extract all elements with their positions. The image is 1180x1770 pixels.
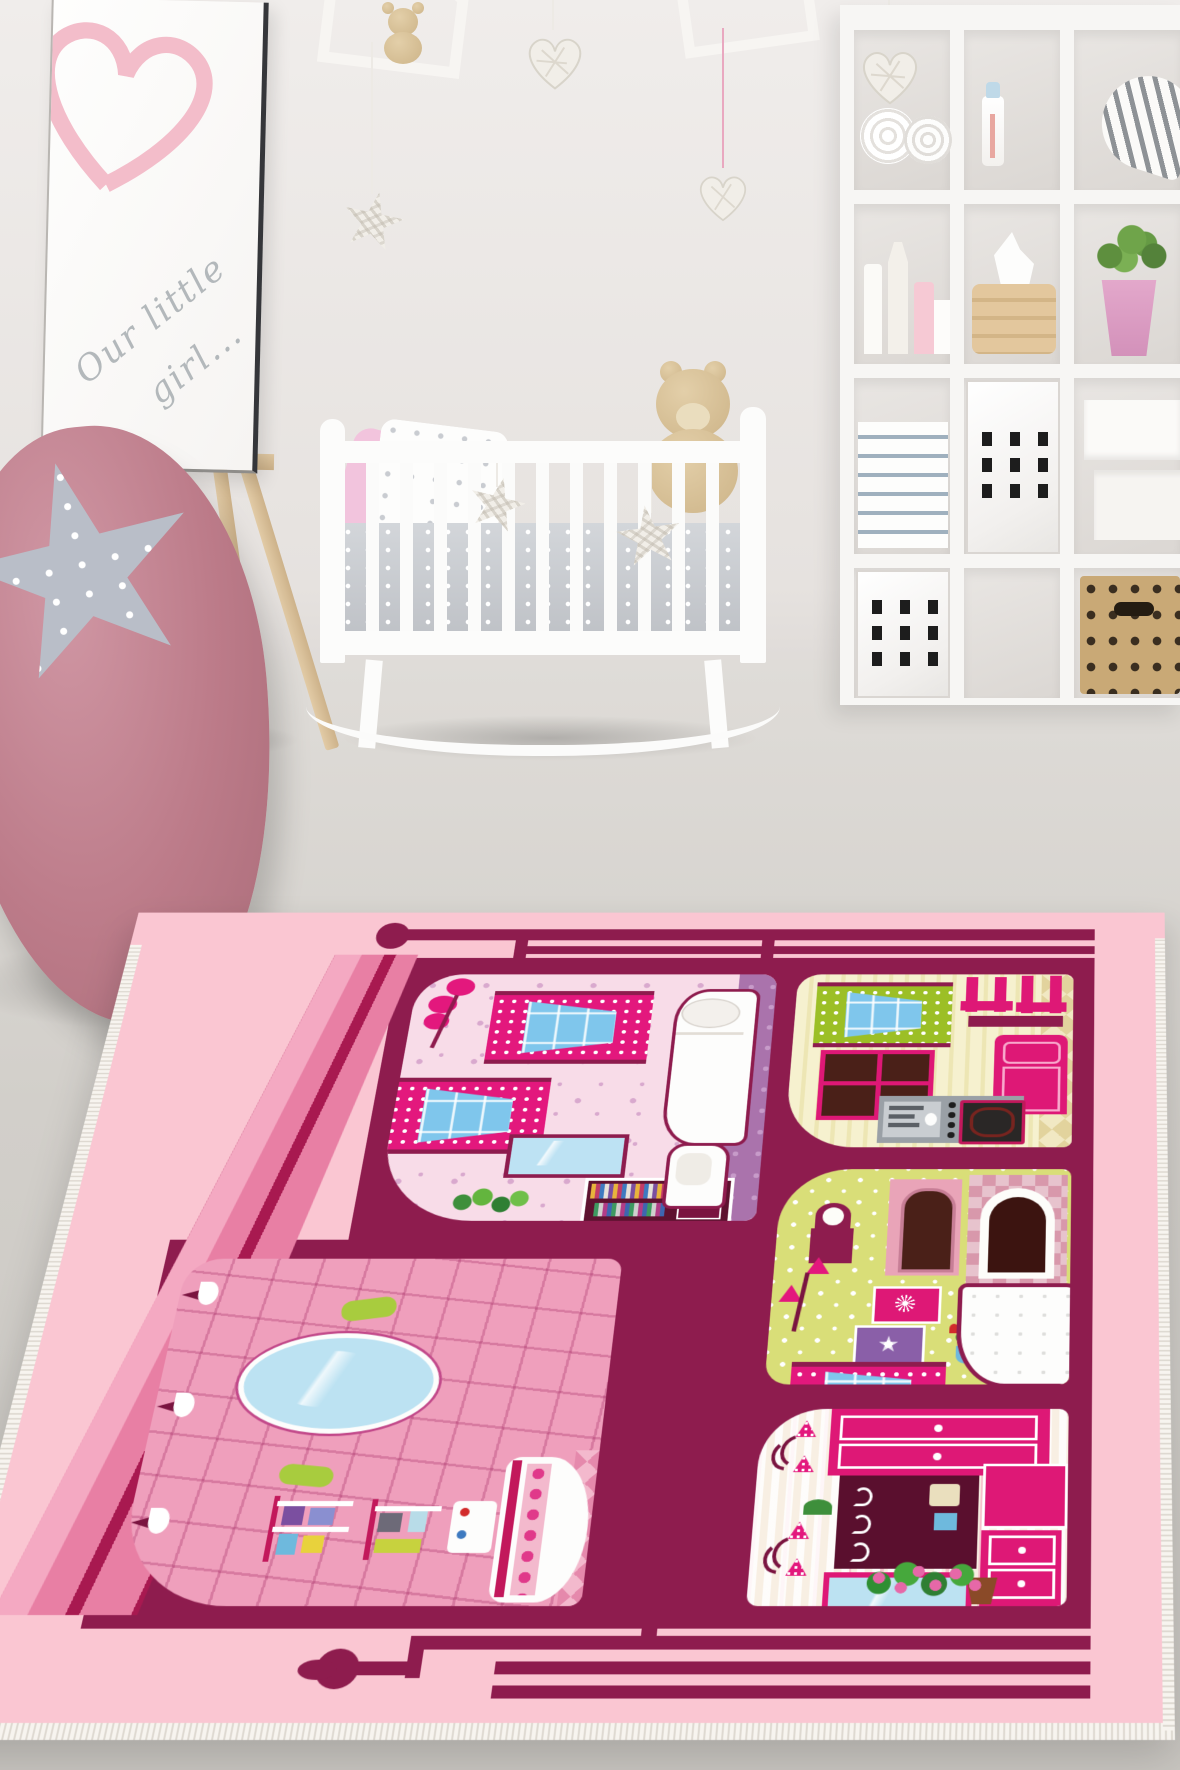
mini-teddy: [380, 8, 426, 64]
baby-bottle: [982, 96, 1004, 166]
rocking-crib: [320, 405, 765, 750]
living-fireplace: [965, 1175, 1067, 1289]
hanging-cord-pink: [722, 28, 724, 168]
bedroom-plant: [442, 1184, 536, 1221]
rug-banister: [372, 918, 1095, 958]
kitchen-window: [813, 982, 953, 1047]
perforated-door: [966, 380, 1060, 554]
wicker-basket: [1080, 576, 1180, 694]
nursery-room-photo: { "scene": { "description": "Nursery roo…: [0, 0, 1180, 1770]
shelf-cell: [964, 204, 1060, 364]
wicker-heart-right: [856, 30, 924, 122]
rug-room-dressing: [746, 1409, 1069, 1606]
bathroom-pedestal-sink: [461, 1357, 553, 1454]
bathroom-pedestal-sink: [375, 1357, 465, 1452]
shelf-cell: [1074, 378, 1180, 554]
dressing-sconce: [764, 1420, 821, 1482]
shelf-cell: [964, 30, 1060, 190]
dressing-rose-bush: [855, 1555, 1012, 1606]
bedroom-armchair: [661, 1143, 731, 1209]
bedroom-bed: [660, 989, 762, 1146]
shelf-cell: [1074, 204, 1180, 364]
bathroom-pedestal-sink: [482, 1266, 565, 1339]
bathroom-sconce: [153, 1391, 197, 1424]
bathroom-slippers: [276, 1463, 336, 1488]
shelf-cell: [1074, 30, 1180, 190]
rug-room-living: [764, 1169, 1071, 1384]
living-flower-mat: [871, 1286, 942, 1323]
striped-heart-cushion: [1090, 64, 1180, 182]
living-flower-mat: [852, 1325, 925, 1365]
rug-room-bathroom: [110, 1259, 622, 1606]
shelf-cell: [854, 378, 950, 554]
book-stack: [858, 422, 948, 548]
shelf-cell: [964, 568, 1060, 698]
bedroom-lamp: [411, 978, 483, 1052]
living-window: [787, 1362, 946, 1385]
rug-room-kitchen: [784, 974, 1074, 1147]
dressing-green-hat: [803, 1499, 833, 1514]
candle: [914, 282, 934, 354]
living-clock: [809, 1203, 856, 1263]
canvas-art: Our little girl...: [40, 0, 268, 474]
bathroom-stand: [446, 1501, 497, 1553]
bedroom-window: [484, 991, 655, 1064]
pink-plant-pot: [1098, 280, 1160, 356]
wicker-heart-left: [522, 22, 588, 102]
kitchen-table-chairs: [959, 974, 1072, 1036]
crib-post-right: [740, 407, 766, 663]
dressing-sconce: [755, 1522, 814, 1587]
shelf-cell: [854, 568, 950, 698]
bathroom-slippers: [341, 1296, 396, 1323]
hanging-cord: [371, 42, 373, 194]
bathroom-pedestal-sink: [404, 1268, 475, 1340]
wooden-tissue-box: [972, 284, 1056, 354]
bathroom-sconce: [178, 1280, 221, 1311]
shelf-cell: [854, 204, 950, 364]
white-box: [1084, 400, 1180, 460]
living-sofa: [954, 1283, 1071, 1384]
rug-room-bedroom: [374, 974, 777, 1220]
living-door: [885, 1179, 962, 1275]
bathroom-sconce: [127, 1506, 173, 1541]
wicker-heart-center: [694, 162, 752, 232]
crib-post-left: [320, 419, 345, 663]
candle: [934, 300, 950, 354]
heart-outline-icon: [40, 0, 244, 220]
shelf-cell: [1074, 568, 1180, 698]
rug-surface: [0, 913, 1175, 1740]
rug-fringe-bottom: [0, 1723, 1175, 1740]
dollhouse-play-rug: [0, 913, 1175, 1740]
shelf-cell: [964, 378, 1060, 554]
rolled-towel: [904, 116, 952, 164]
white-box: [1094, 470, 1180, 540]
candle: [888, 242, 908, 354]
tissue-puff: [994, 232, 1034, 290]
bathroom-toiletry-shelf: [262, 1496, 358, 1562]
rug-staircase: [288, 1629, 1090, 1721]
crib-slats: [332, 463, 754, 637]
kitchen-stove: [877, 1096, 1024, 1143]
crib-bottom-rail: [326, 631, 760, 655]
plant-foliage: [1084, 210, 1176, 284]
perforated-door: [856, 570, 950, 698]
crib-top-rail: [326, 441, 760, 463]
candle: [864, 264, 882, 354]
living-floor-lamp: [770, 1257, 835, 1335]
bedroom-vanity-mirror: [503, 1134, 629, 1178]
bathroom-toiletry-shelf: [363, 1499, 447, 1560]
